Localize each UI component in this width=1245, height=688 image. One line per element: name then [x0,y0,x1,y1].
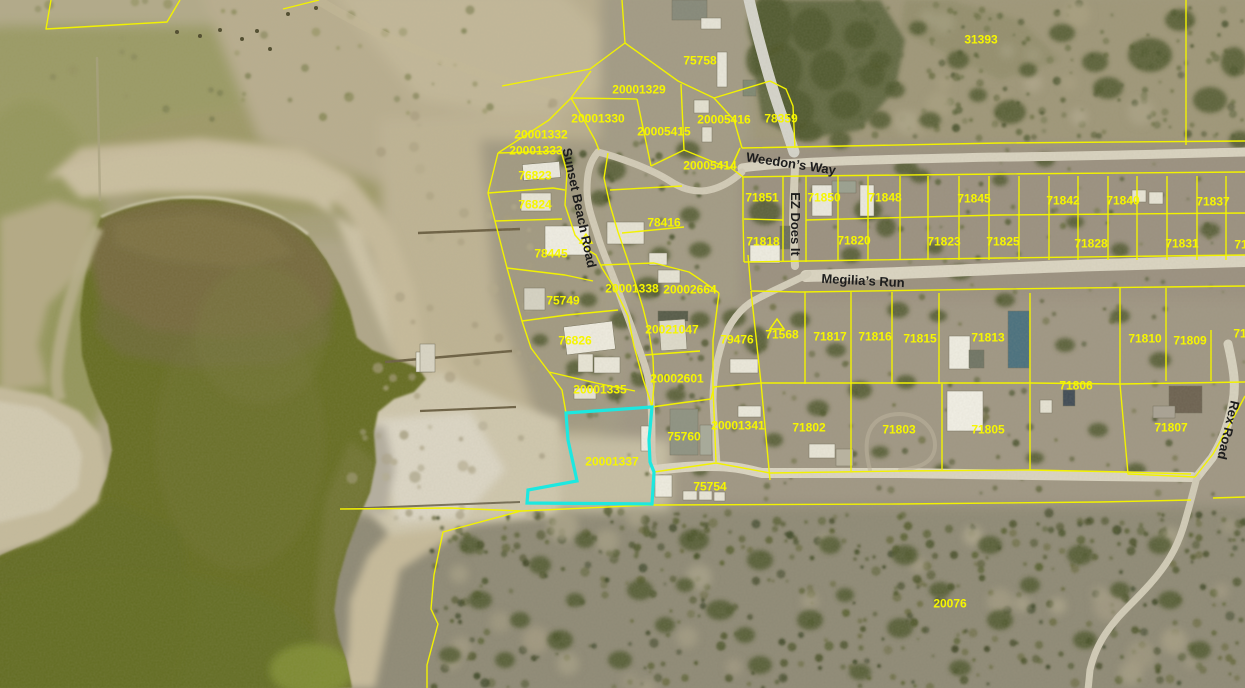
svg-text:71808: 71808 [1233,327,1245,341]
svg-text:71850: 71850 [807,191,841,205]
svg-text:71810: 71810 [1128,332,1162,346]
svg-text:20002664: 20002664 [663,283,717,297]
svg-text:75754: 75754 [693,480,727,494]
svg-text:71817: 71817 [813,330,847,344]
svg-text:20001332: 20001332 [514,128,568,142]
svg-text:71818: 71818 [746,235,780,249]
svg-text:71816: 71816 [858,330,892,344]
svg-text:78416: 78416 [647,216,681,230]
svg-text:71845: 71845 [957,192,991,206]
svg-text:71805: 71805 [971,423,1005,437]
svg-text:20001337: 20001337 [585,455,639,469]
svg-text:EZ Does It: EZ Does It [788,192,803,256]
svg-text:76826: 76826 [558,334,592,348]
svg-text:71813: 71813 [971,331,1005,345]
svg-text:20001333: 20001333 [509,144,563,158]
svg-text:71823: 71823 [927,235,961,249]
svg-text:75760: 75760 [667,430,701,444]
svg-text:71815: 71815 [903,332,937,346]
svg-text:71806: 71806 [1059,379,1093,393]
svg-text:71803: 71803 [882,423,916,437]
svg-text:20001341: 20001341 [711,419,765,433]
svg-text:75758: 75758 [683,54,717,68]
svg-text:76824: 76824 [518,198,552,212]
svg-text:71807: 71807 [1154,421,1188,435]
svg-text:20001329: 20001329 [612,83,666,97]
svg-text:20005415: 20005415 [637,125,691,139]
svg-text:71848: 71848 [868,191,902,205]
svg-text:71802: 71802 [792,421,826,435]
svg-text:71809: 71809 [1173,334,1207,348]
svg-text:31393: 31393 [964,33,998,47]
svg-text:71837: 71837 [1196,195,1230,209]
svg-text:79476: 79476 [720,333,754,347]
svg-text:78445: 78445 [534,247,568,261]
svg-text:20001335: 20001335 [573,383,627,397]
svg-text:20076: 20076 [933,597,967,611]
svg-text:20002601: 20002601 [650,372,704,386]
svg-text:20021047: 20021047 [645,323,699,337]
svg-text:76823: 76823 [518,169,552,183]
svg-text:71851: 71851 [745,191,779,205]
svg-text:20001338: 20001338 [605,282,659,296]
svg-text:20005414: 20005414 [683,159,737,173]
svg-text:71825: 71825 [986,235,1020,249]
svg-text:71831: 71831 [1165,237,1199,251]
svg-text:71820: 71820 [837,234,871,248]
svg-text:20005416: 20005416 [697,113,751,127]
svg-text:20001330: 20001330 [571,112,625,126]
svg-text:71840: 71840 [1106,194,1140,208]
svg-text:71842: 71842 [1046,194,1080,208]
svg-text:75749: 75749 [546,294,580,308]
svg-text:78359: 78359 [764,112,798,126]
svg-text:71828: 71828 [1074,237,1108,251]
svg-text:71835: 71835 [1234,238,1245,252]
